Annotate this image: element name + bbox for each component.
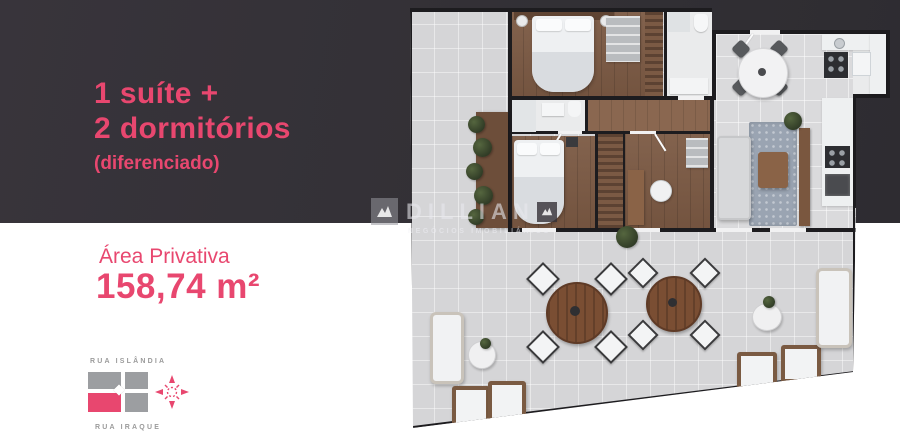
table-centerpiece — [668, 298, 677, 307]
suite-shelf — [606, 16, 640, 62]
block-cell — [125, 372, 148, 389]
street-name-top: RUA ISLÂNDIA — [90, 358, 166, 365]
plant — [480, 338, 491, 349]
wall — [664, 12, 667, 98]
location-map: RUA ISLÂNDIA RUA IRAQUE — [88, 356, 208, 440]
street-name-bottom: RUA IRAQUE — [95, 424, 161, 431]
toilet — [568, 101, 581, 117]
block-cell — [125, 393, 148, 412]
terrace-armchair — [737, 352, 777, 390]
floorplan-marketing-page: 1 suíte + 2 dormitórios (diferenciado) Á… — [0, 0, 900, 448]
headline-line1: 1 suíte + — [94, 76, 291, 111]
wall — [853, 94, 857, 208]
wall — [508, 131, 712, 134]
plant — [784, 112, 802, 130]
cooktop — [825, 146, 850, 168]
plant — [763, 296, 775, 308]
refrigerator — [852, 52, 871, 76]
watermark: DILLIAN NEGÓCIOS IMOBILIÁRIOS — [371, 198, 557, 235]
city-block-diagram — [88, 372, 148, 412]
wall — [623, 134, 625, 228]
watermark-tagline: NEGÓCIOS IMOBILIÁRIOS — [408, 228, 557, 235]
plant — [616, 226, 638, 248]
highlighted-lot-cell — [88, 393, 121, 412]
terrace-armchair — [488, 381, 526, 423]
wall — [710, 98, 714, 228]
terrace-chair — [689, 319, 720, 350]
bathroom-sink — [542, 103, 564, 116]
terrace-chair — [594, 330, 628, 364]
desk-chair — [650, 180, 672, 202]
house-logo-icon — [537, 202, 557, 222]
door-opening — [630, 131, 656, 134]
pillow — [540, 143, 560, 155]
compass-rose-icon — [154, 374, 190, 415]
nightstand — [516, 15, 528, 27]
coffee-table — [758, 152, 788, 188]
sun-lounger — [816, 268, 852, 348]
bedroom-shelf — [686, 138, 708, 168]
shower — [668, 12, 690, 32]
private-area-value: 158,74 m² — [96, 267, 260, 307]
plant — [468, 116, 485, 133]
terrace-edge — [853, 205, 855, 373]
sliding-door — [770, 228, 806, 232]
sofa — [717, 136, 751, 220]
entry-door-opening — [750, 30, 780, 34]
pillow — [517, 143, 537, 155]
suite-wardrobe — [645, 12, 663, 98]
wall — [886, 30, 890, 98]
tv-rack — [799, 128, 810, 226]
wall — [712, 8, 716, 100]
bathroom-sink — [670, 78, 708, 94]
plant — [473, 138, 492, 157]
toilet — [694, 14, 708, 32]
plant — [466, 163, 483, 180]
door-opening — [678, 96, 704, 100]
watermark-brand: DILLIAN — [406, 201, 535, 223]
desk — [628, 170, 644, 225]
headline-line2: 2 dormitórios — [94, 111, 291, 146]
closet — [597, 134, 623, 228]
subheadline: (diferenciado) — [94, 153, 220, 175]
oven — [825, 174, 850, 196]
terrace-armchair — [781, 345, 821, 383]
kitchen-sink — [834, 38, 845, 49]
terrace-armchair — [452, 386, 490, 428]
wall — [585, 100, 588, 131]
table-centerpiece — [570, 306, 580, 316]
table-centerpiece — [758, 68, 766, 76]
kitchen-counter — [870, 34, 886, 94]
blanket — [532, 52, 594, 92]
shower — [512, 100, 536, 132]
wall — [856, 94, 890, 98]
pillow — [536, 19, 562, 31]
sun-lounger — [430, 312, 464, 384]
pillow — [565, 19, 591, 31]
headline: 1 suíte + 2 dormitórios — [94, 76, 291, 146]
wall — [595, 134, 598, 228]
nightstand — [566, 137, 578, 147]
house-logo-icon — [371, 198, 398, 225]
sliding-door — [716, 228, 752, 232]
stove-cooktop — [824, 52, 848, 78]
private-area-label: Área Privativa — [99, 245, 230, 269]
hallway — [587, 100, 710, 131]
